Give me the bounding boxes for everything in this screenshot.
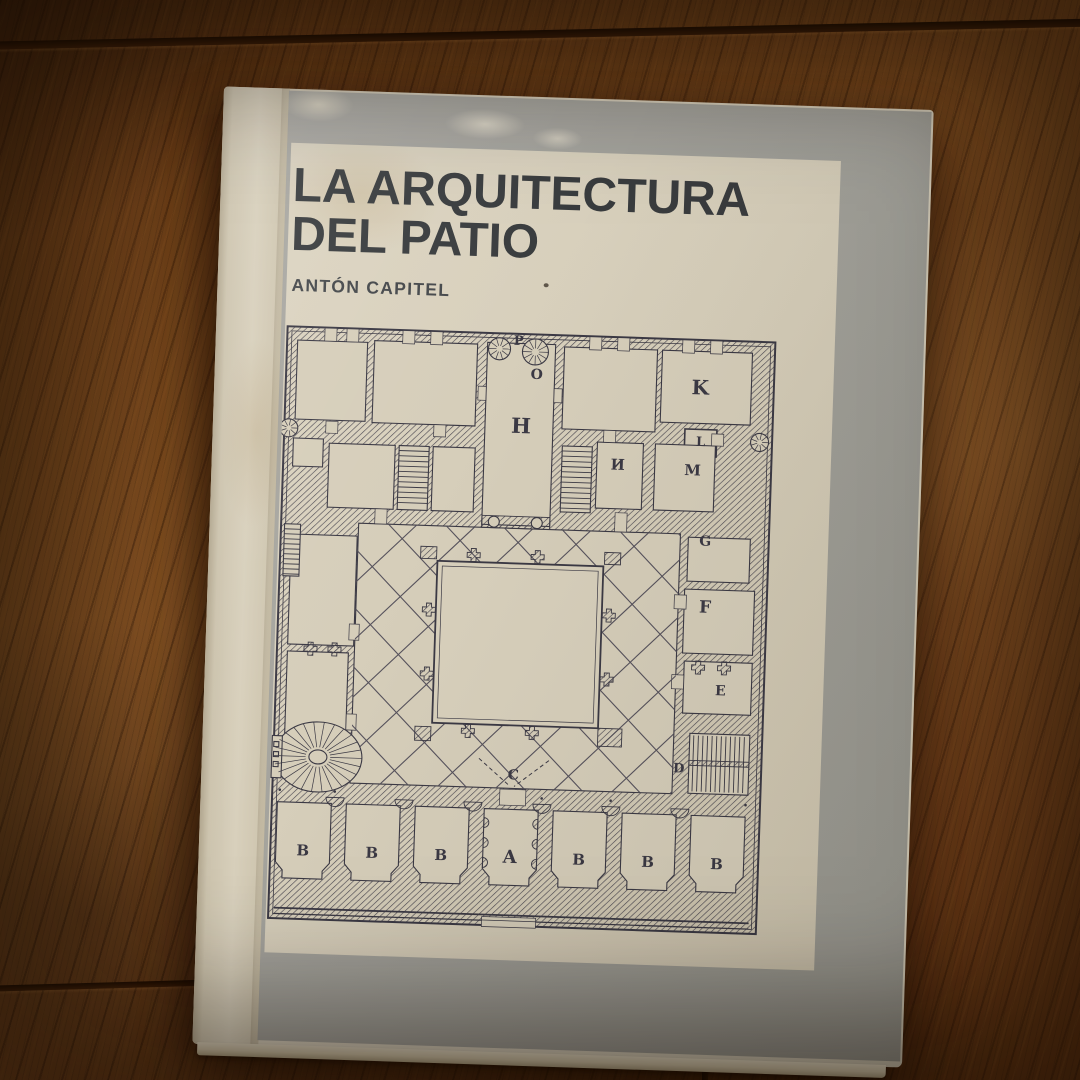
svg-text:F: F (699, 598, 712, 618)
svg-text:B: B (434, 846, 447, 864)
book-cover: LA ARQUITECTURA DEL PATIO ANTÓN CAPITEL (192, 86, 933, 1067)
svg-text:B: B (296, 841, 309, 859)
ink-speck (544, 283, 549, 287)
svg-text:B: B (572, 850, 585, 868)
svg-text:A: A (501, 847, 518, 869)
svg-text:D: D (673, 761, 685, 776)
svg-text:L: L (696, 435, 706, 450)
floor-plan-figure: POHKLИMGFEDCABBBBBB (265, 324, 778, 937)
svg-text:И: И (610, 456, 625, 474)
svg-text:B: B (641, 853, 654, 871)
svg-text:P: P (514, 334, 524, 349)
svg-text:K: K (691, 375, 710, 400)
courtyard (432, 561, 603, 728)
svg-text:H: H (511, 413, 532, 439)
title-line-2: DEL PATIO (290, 208, 540, 269)
svg-text:C: C (508, 767, 520, 783)
svg-text:O: O (530, 367, 543, 383)
photo-scene: LA ARQUITECTURA DEL PATIO ANTÓN CAPITEL (0, 0, 1080, 1080)
floor-plan-svg: POHKLИMGFEDCABBBBBB (265, 324, 778, 937)
svg-text:B: B (710, 855, 723, 873)
table-plank-joint-top (0, 18, 1080, 50)
svg-text:M: M (684, 461, 701, 480)
book-title: LA ARQUITECTURA DEL PATIO (290, 161, 751, 274)
svg-text:B: B (365, 844, 378, 862)
svg-text:G: G (699, 534, 711, 550)
svg-text:E: E (715, 683, 726, 699)
